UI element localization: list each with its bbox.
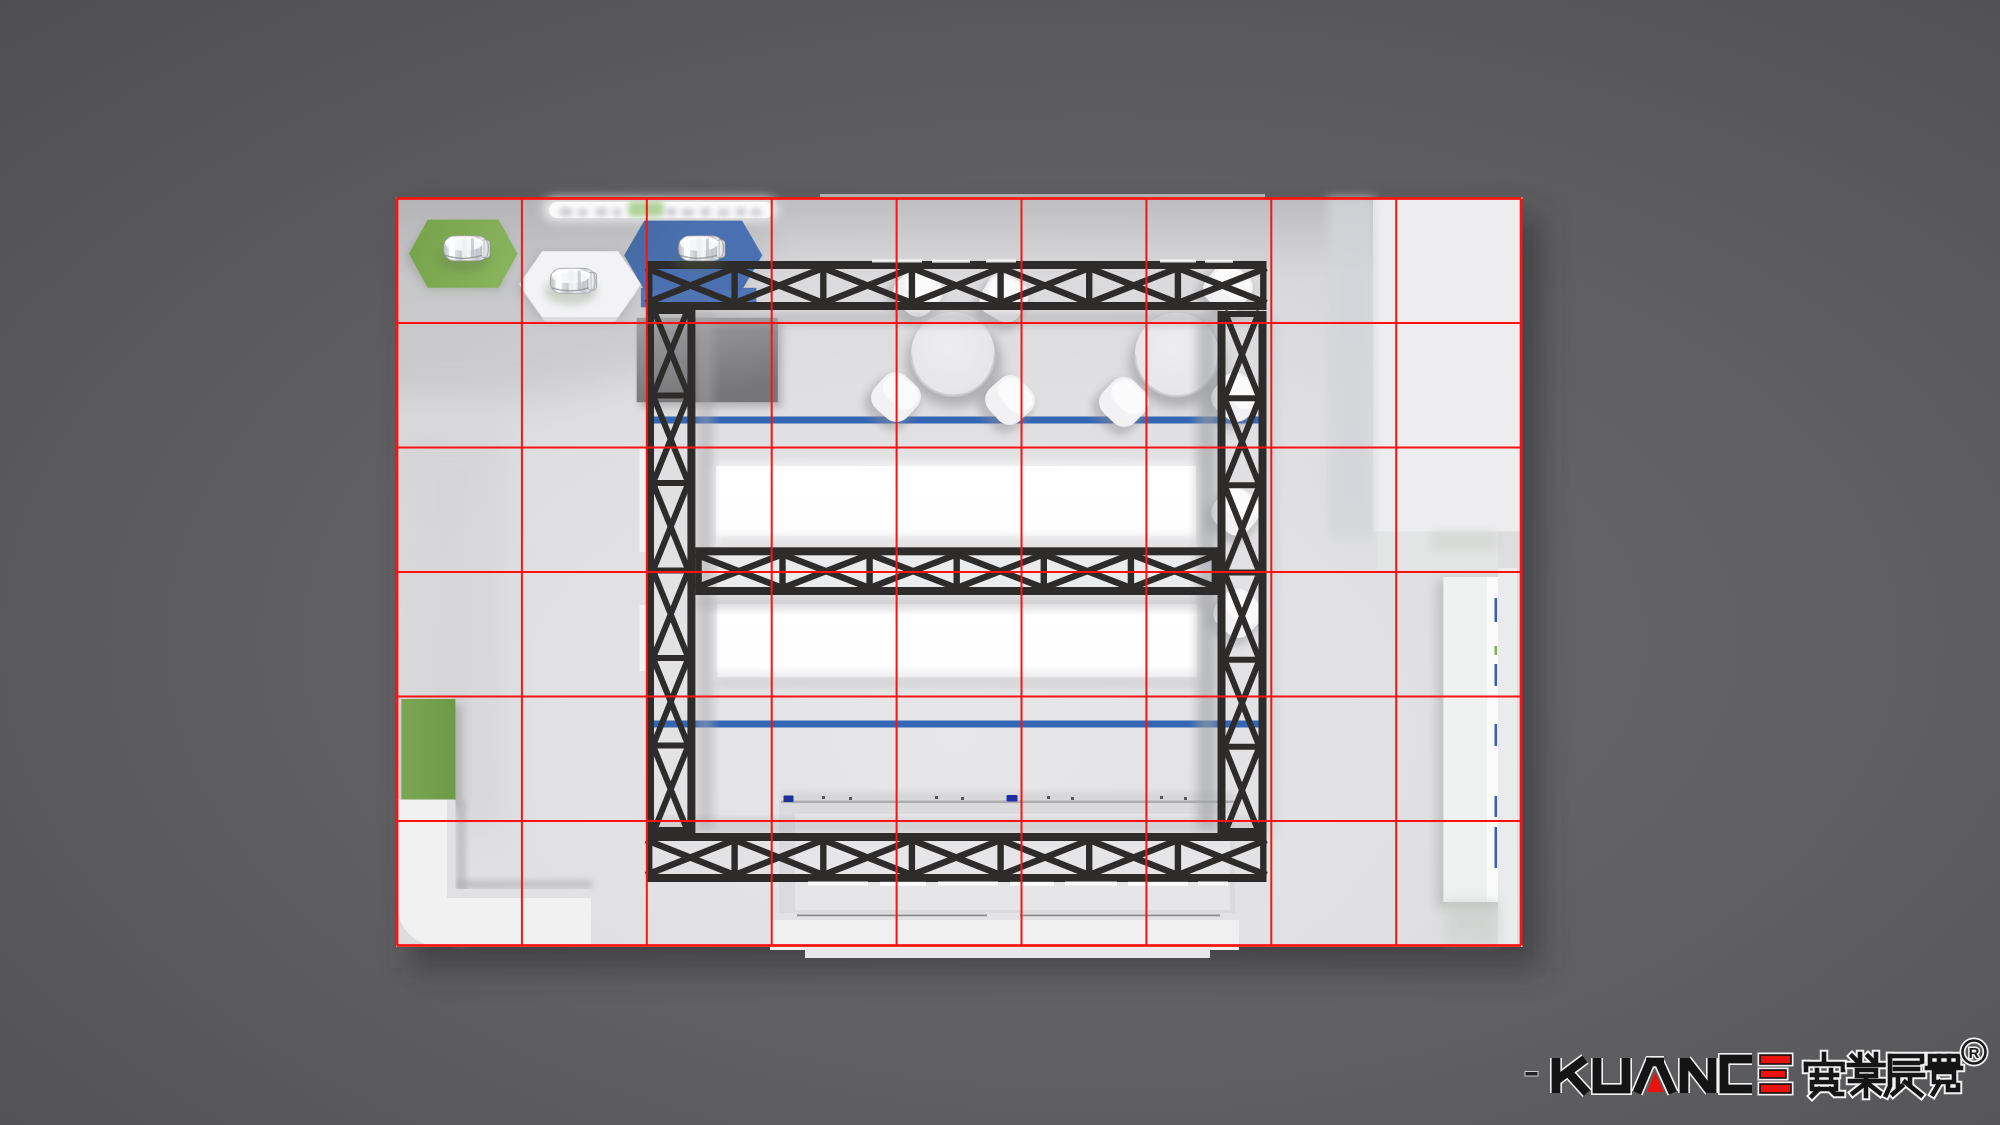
svg-text:R: R [1969, 1045, 1980, 1062]
